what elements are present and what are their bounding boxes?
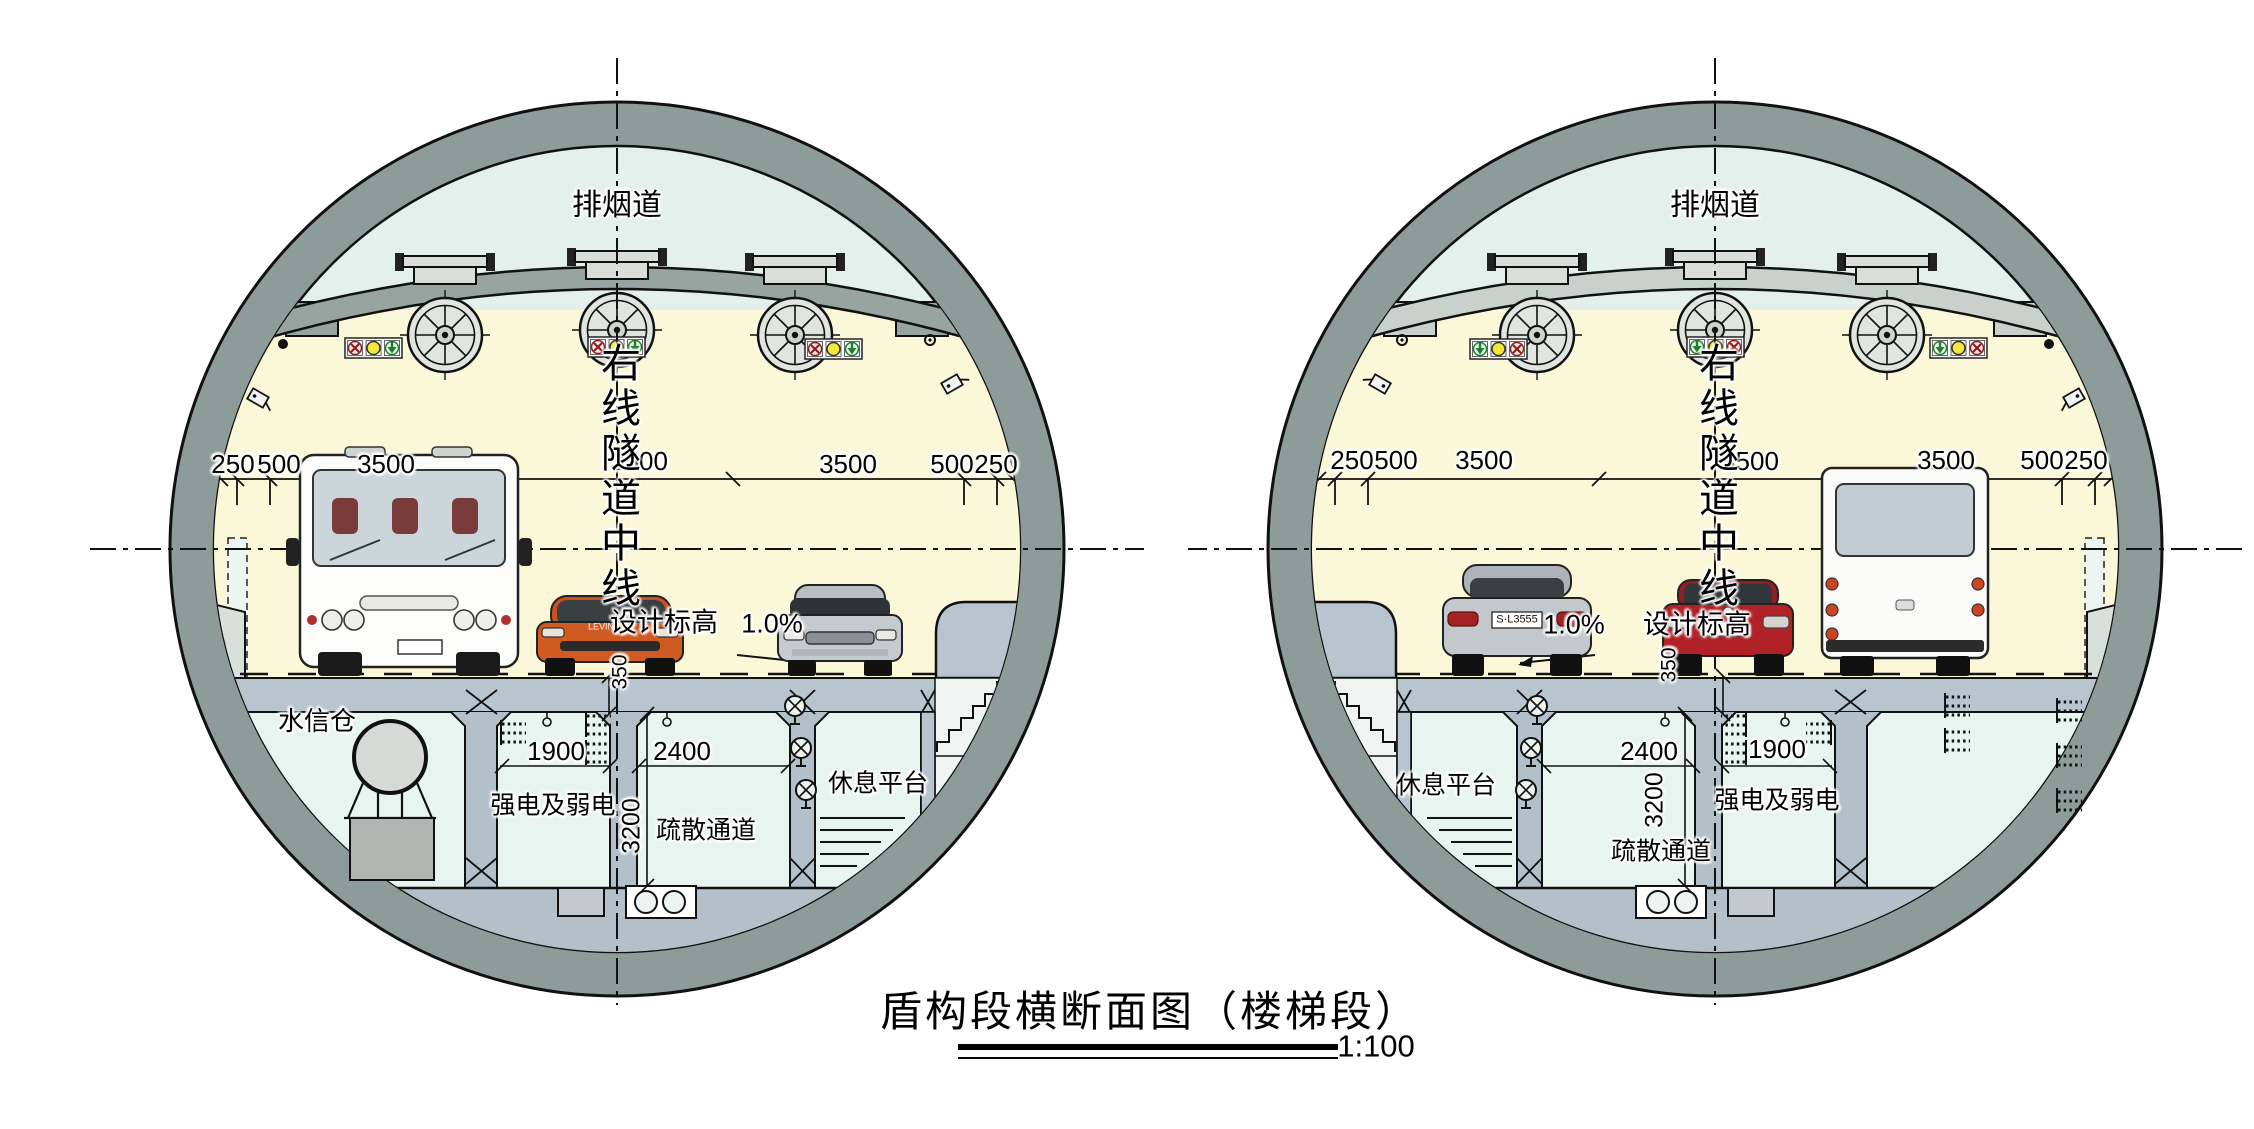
bus-front bbox=[286, 447, 532, 676]
dim-350-left: 350 bbox=[610, 654, 631, 689]
dim-350-right: 350 bbox=[1659, 647, 1680, 682]
dim-2400-right: 2400 bbox=[1620, 738, 1678, 764]
dim-3500-c-r: 3500 bbox=[1917, 447, 1975, 473]
label-power-room-left: 强电及弱电 bbox=[490, 794, 615, 819]
dim-500-left-r: 500 bbox=[1374, 447, 1417, 473]
license-plate-mercedes: S·L3555 bbox=[1496, 615, 1538, 626]
label-centerline-left: 右线隧道中线 bbox=[597, 342, 637, 612]
dim-500-left-l: 500 bbox=[257, 451, 300, 477]
label-smoke-duct-right: 排烟道 bbox=[1670, 191, 1760, 221]
dim-1900-left: 1900 bbox=[527, 738, 585, 764]
title-underline bbox=[958, 1044, 1338, 1059]
dim-3500-a-l: 3500 bbox=[357, 451, 415, 477]
dim-250-right-r: 250 bbox=[2064, 447, 2107, 473]
label-slope-left: 1.0% bbox=[741, 611, 803, 638]
label-evac-corridor-left: 疏散通道 bbox=[656, 819, 756, 844]
dim-1900-right: 1900 bbox=[1748, 736, 1806, 762]
dim-3500-c-l: 3500 bbox=[819, 451, 877, 477]
label-rest-platform-left: 休息平台 bbox=[828, 772, 928, 797]
label-evac-corridor-right: 疏散通道 bbox=[1611, 840, 1711, 865]
label-centerline-right: 右线隧道中线 bbox=[1695, 342, 1735, 612]
label-rest-platform-right: 休息平台 bbox=[1396, 774, 1496, 799]
tunnel-cross-sections bbox=[0, 0, 2254, 1129]
dim-250-left-l: 250 bbox=[211, 451, 254, 477]
dim-500-right-r: 500 bbox=[2020, 447, 2063, 473]
label-smoke-duct-left: 排烟道 bbox=[572, 191, 662, 221]
label-design-elevation-right: 设计标高 bbox=[1643, 612, 1751, 639]
tunnel-drawing-sheet: 排烟道 250 500 3500 3500 3500 500 250 右线隧道中… bbox=[0, 0, 2254, 1129]
dim-3500-a-r: 3500 bbox=[1455, 447, 1513, 473]
dim-250-right-l: 250 bbox=[974, 451, 1017, 477]
label-power-room-right: 强电及弱电 bbox=[1714, 789, 1839, 814]
drawing-title: 盾构段横断面图（楼梯段） bbox=[880, 991, 1420, 1033]
dim-3200-right: 3200 bbox=[1643, 772, 1668, 828]
van-white-rear bbox=[1822, 468, 1988, 676]
dim-2400-left: 2400 bbox=[653, 738, 711, 764]
dim-3200-left: 3200 bbox=[620, 798, 645, 854]
label-slope-right: 1.0% bbox=[1543, 612, 1605, 639]
drawing-scale: 1:100 bbox=[1337, 1031, 1415, 1062]
label-water-room-left: 水信仓 bbox=[278, 708, 356, 734]
dim-500-right-l: 500 bbox=[930, 451, 973, 477]
dim-250-left-r: 250 bbox=[1330, 447, 1373, 473]
label-design-elevation-left: 设计标高 bbox=[610, 610, 718, 637]
car-badge-levin: LEVIN bbox=[588, 623, 614, 632]
